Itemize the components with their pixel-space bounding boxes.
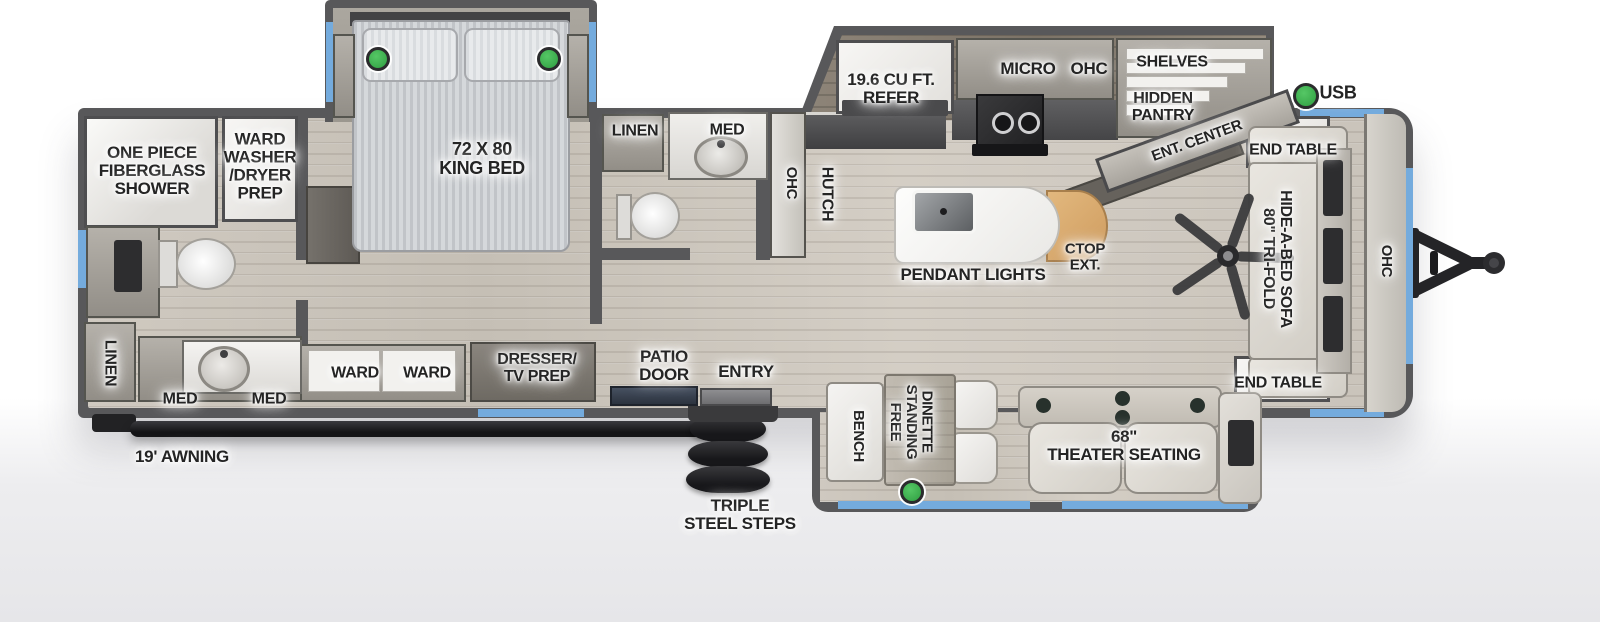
linen-rear-label: LINEN bbox=[101, 340, 118, 387]
entry-steps-icon bbox=[688, 441, 768, 467]
rear-vanity-door bbox=[114, 240, 142, 292]
ohc-mid-label: OHC bbox=[783, 167, 799, 199]
med-label: MED bbox=[252, 392, 287, 409]
patio-door-label: PATIO DOOR bbox=[639, 348, 689, 384]
rear-toilet-bowl bbox=[176, 238, 236, 290]
med-mid-label: MED bbox=[710, 123, 745, 140]
awning-icon bbox=[130, 421, 704, 437]
ohc-kitchen-label: OHC bbox=[1071, 60, 1108, 78]
patio-door bbox=[610, 386, 698, 406]
usb-label: USB bbox=[1319, 84, 1356, 103]
window-strip bbox=[326, 22, 333, 102]
window-strip bbox=[1405, 168, 1413, 364]
pendant-lights-label: PENDANT LIGHTS bbox=[900, 266, 1045, 284]
usb-indicator-dot bbox=[1293, 83, 1319, 109]
ward-label: WARD bbox=[403, 366, 451, 383]
shower-label: ONE PIECE FIBERGLASS SHOWER bbox=[99, 144, 206, 198]
rv-floorplan: ONE PIECE FIBERGLASS SHOWER WARD WASHER … bbox=[0, 0, 1600, 622]
rear-sink-faucet bbox=[220, 350, 228, 358]
ward-washer-label: WARD WASHER /DRYER PREP bbox=[224, 130, 297, 201]
refer-label: 19.6 CU FT. REFER bbox=[847, 71, 934, 107]
burner-icon bbox=[1018, 112, 1040, 134]
bench-label: BENCH bbox=[850, 410, 866, 462]
mid-sink-faucet bbox=[717, 140, 725, 148]
oven-front bbox=[972, 144, 1048, 156]
window-strip bbox=[589, 22, 596, 102]
steps-label: TRIPLE STEEL STEPS bbox=[684, 497, 796, 533]
shelf-bar bbox=[1126, 76, 1228, 88]
mid-toilet-icon bbox=[630, 192, 680, 240]
cupholder-icon bbox=[1115, 391, 1130, 406]
ward-label: WARD bbox=[331, 366, 379, 383]
entry-steps-icon bbox=[686, 466, 770, 493]
interior-wall bbox=[590, 108, 602, 324]
king-bed-label: 72 X 80 KING BED bbox=[439, 140, 525, 178]
med-label: MED bbox=[163, 392, 198, 409]
kitchen-counter bbox=[806, 112, 946, 149]
burner-icon bbox=[992, 112, 1014, 134]
end-table-bottom-label: END TABLE bbox=[1234, 376, 1322, 393]
trailer-hitch-icon bbox=[1406, 218, 1510, 308]
rear-toilet-icon bbox=[158, 240, 178, 288]
hutch-label: HUTCH bbox=[818, 167, 835, 222]
awning-label: 19' AWNING bbox=[135, 448, 229, 466]
interior-wall bbox=[596, 248, 690, 260]
entry-threshold bbox=[688, 406, 778, 422]
linen-mid-label: LINEN bbox=[612, 124, 659, 141]
nightstand-left bbox=[333, 34, 355, 118]
usb-indicator-dot bbox=[537, 47, 561, 71]
ctop-ext-label: CTOP EXT. bbox=[1065, 241, 1105, 273]
sofa-back-slot bbox=[1323, 160, 1343, 216]
ohc-front-label: OHC bbox=[1378, 245, 1394, 277]
sofa-back-slot bbox=[1323, 296, 1343, 352]
window-strip bbox=[78, 230, 86, 288]
sofa-label: 80" TRI-FOLD HIDE-A-BED SOFA bbox=[1259, 190, 1293, 328]
cupholder-icon bbox=[1190, 398, 1205, 413]
cupholder-icon bbox=[1115, 410, 1130, 425]
armrest-console bbox=[1228, 420, 1254, 466]
hidden-pantry-label: HIDDEN PANTRY bbox=[1132, 91, 1194, 125]
micro-label: MICRO bbox=[1000, 60, 1055, 78]
nightstand-right bbox=[567, 34, 589, 118]
window-strip bbox=[478, 409, 584, 417]
cupholder-icon bbox=[1036, 398, 1051, 413]
dresser-label: DRESSER/ TV PREP bbox=[497, 352, 576, 386]
usb-indicator-dot bbox=[900, 480, 924, 504]
usb-indicator-dot bbox=[366, 47, 390, 71]
end-table-top-label: END TABLE bbox=[1249, 143, 1337, 160]
island-faucet bbox=[940, 208, 947, 215]
sofa-back-slot bbox=[1323, 228, 1343, 284]
dinette-label: FREE STANDING DINETTE bbox=[887, 385, 934, 460]
shelves-label: SHELVES bbox=[1136, 55, 1207, 72]
entry-label: ENTRY bbox=[718, 363, 774, 381]
theater-label: 68" THEATER SEATING bbox=[1047, 428, 1201, 464]
entry-door bbox=[700, 388, 772, 406]
window-strip bbox=[838, 501, 1030, 509]
